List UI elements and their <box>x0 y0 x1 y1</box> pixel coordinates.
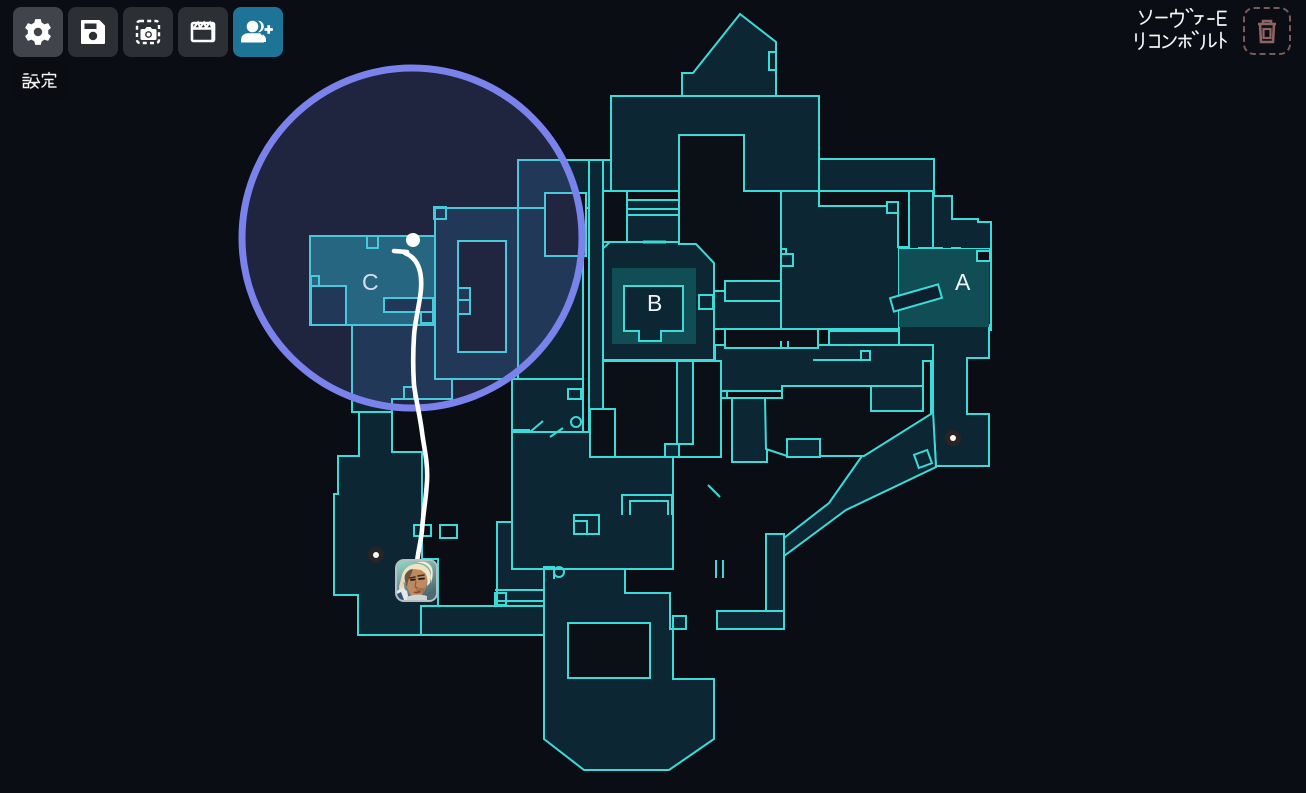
svg-text:A: A <box>955 269 971 295</box>
svg-text:B: B <box>647 290 662 316</box>
